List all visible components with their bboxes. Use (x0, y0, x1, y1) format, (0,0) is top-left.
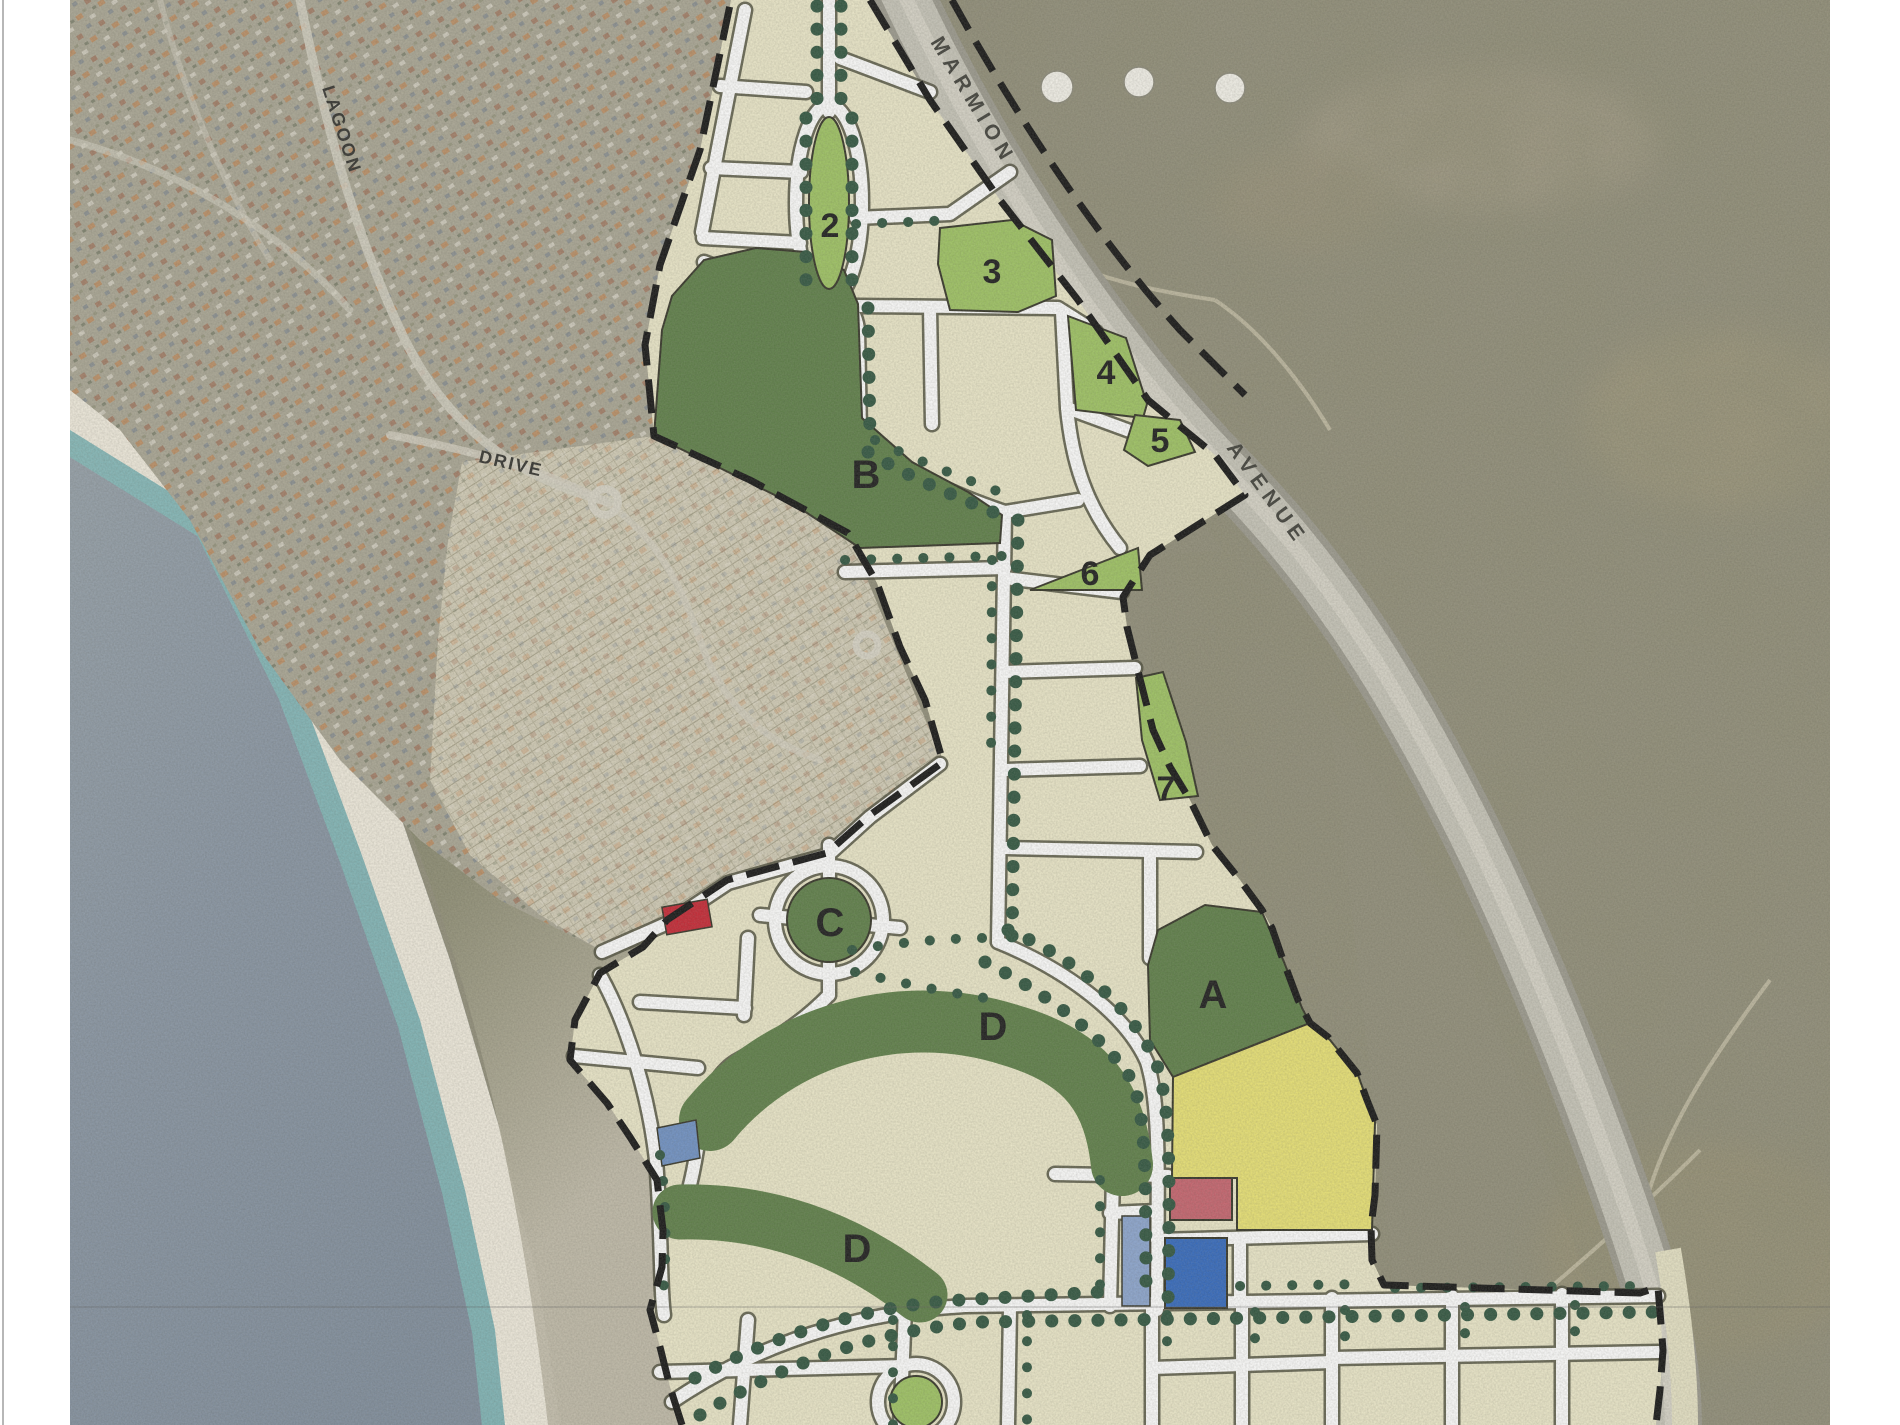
left-margin (0, 0, 70, 1425)
scan-grain-light (70, 0, 1830, 1425)
structure-plan-map: LAGOON DRIVE MARMION AVENUE (0, 0, 1900, 1425)
right-margin (1830, 0, 1900, 1425)
